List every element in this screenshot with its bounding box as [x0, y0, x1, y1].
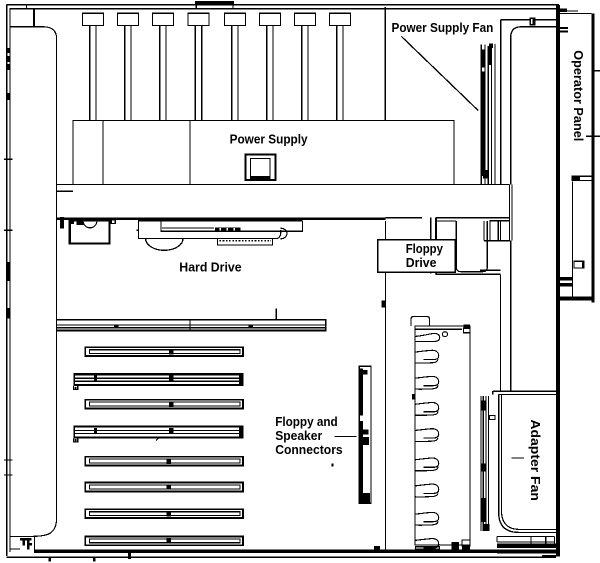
svg-text:Power Supply: Power Supply [230, 133, 308, 147]
svg-text:Hard Drive: Hard Drive [179, 260, 241, 274]
svg-text:Floppy: Floppy [406, 242, 443, 256]
svg-text:Floppy and: Floppy and [275, 415, 338, 429]
svg-text:Connectors: Connectors [275, 443, 343, 457]
svg-text:Operator Panel: Operator Panel [571, 50, 585, 141]
svg-text:Adapter Fan: Adapter Fan [528, 419, 542, 501]
svg-text:Power Supply Fan: Power Supply Fan [392, 21, 494, 35]
svg-text:Speaker: Speaker [275, 429, 322, 443]
svg-text:Drive: Drive [406, 256, 437, 270]
